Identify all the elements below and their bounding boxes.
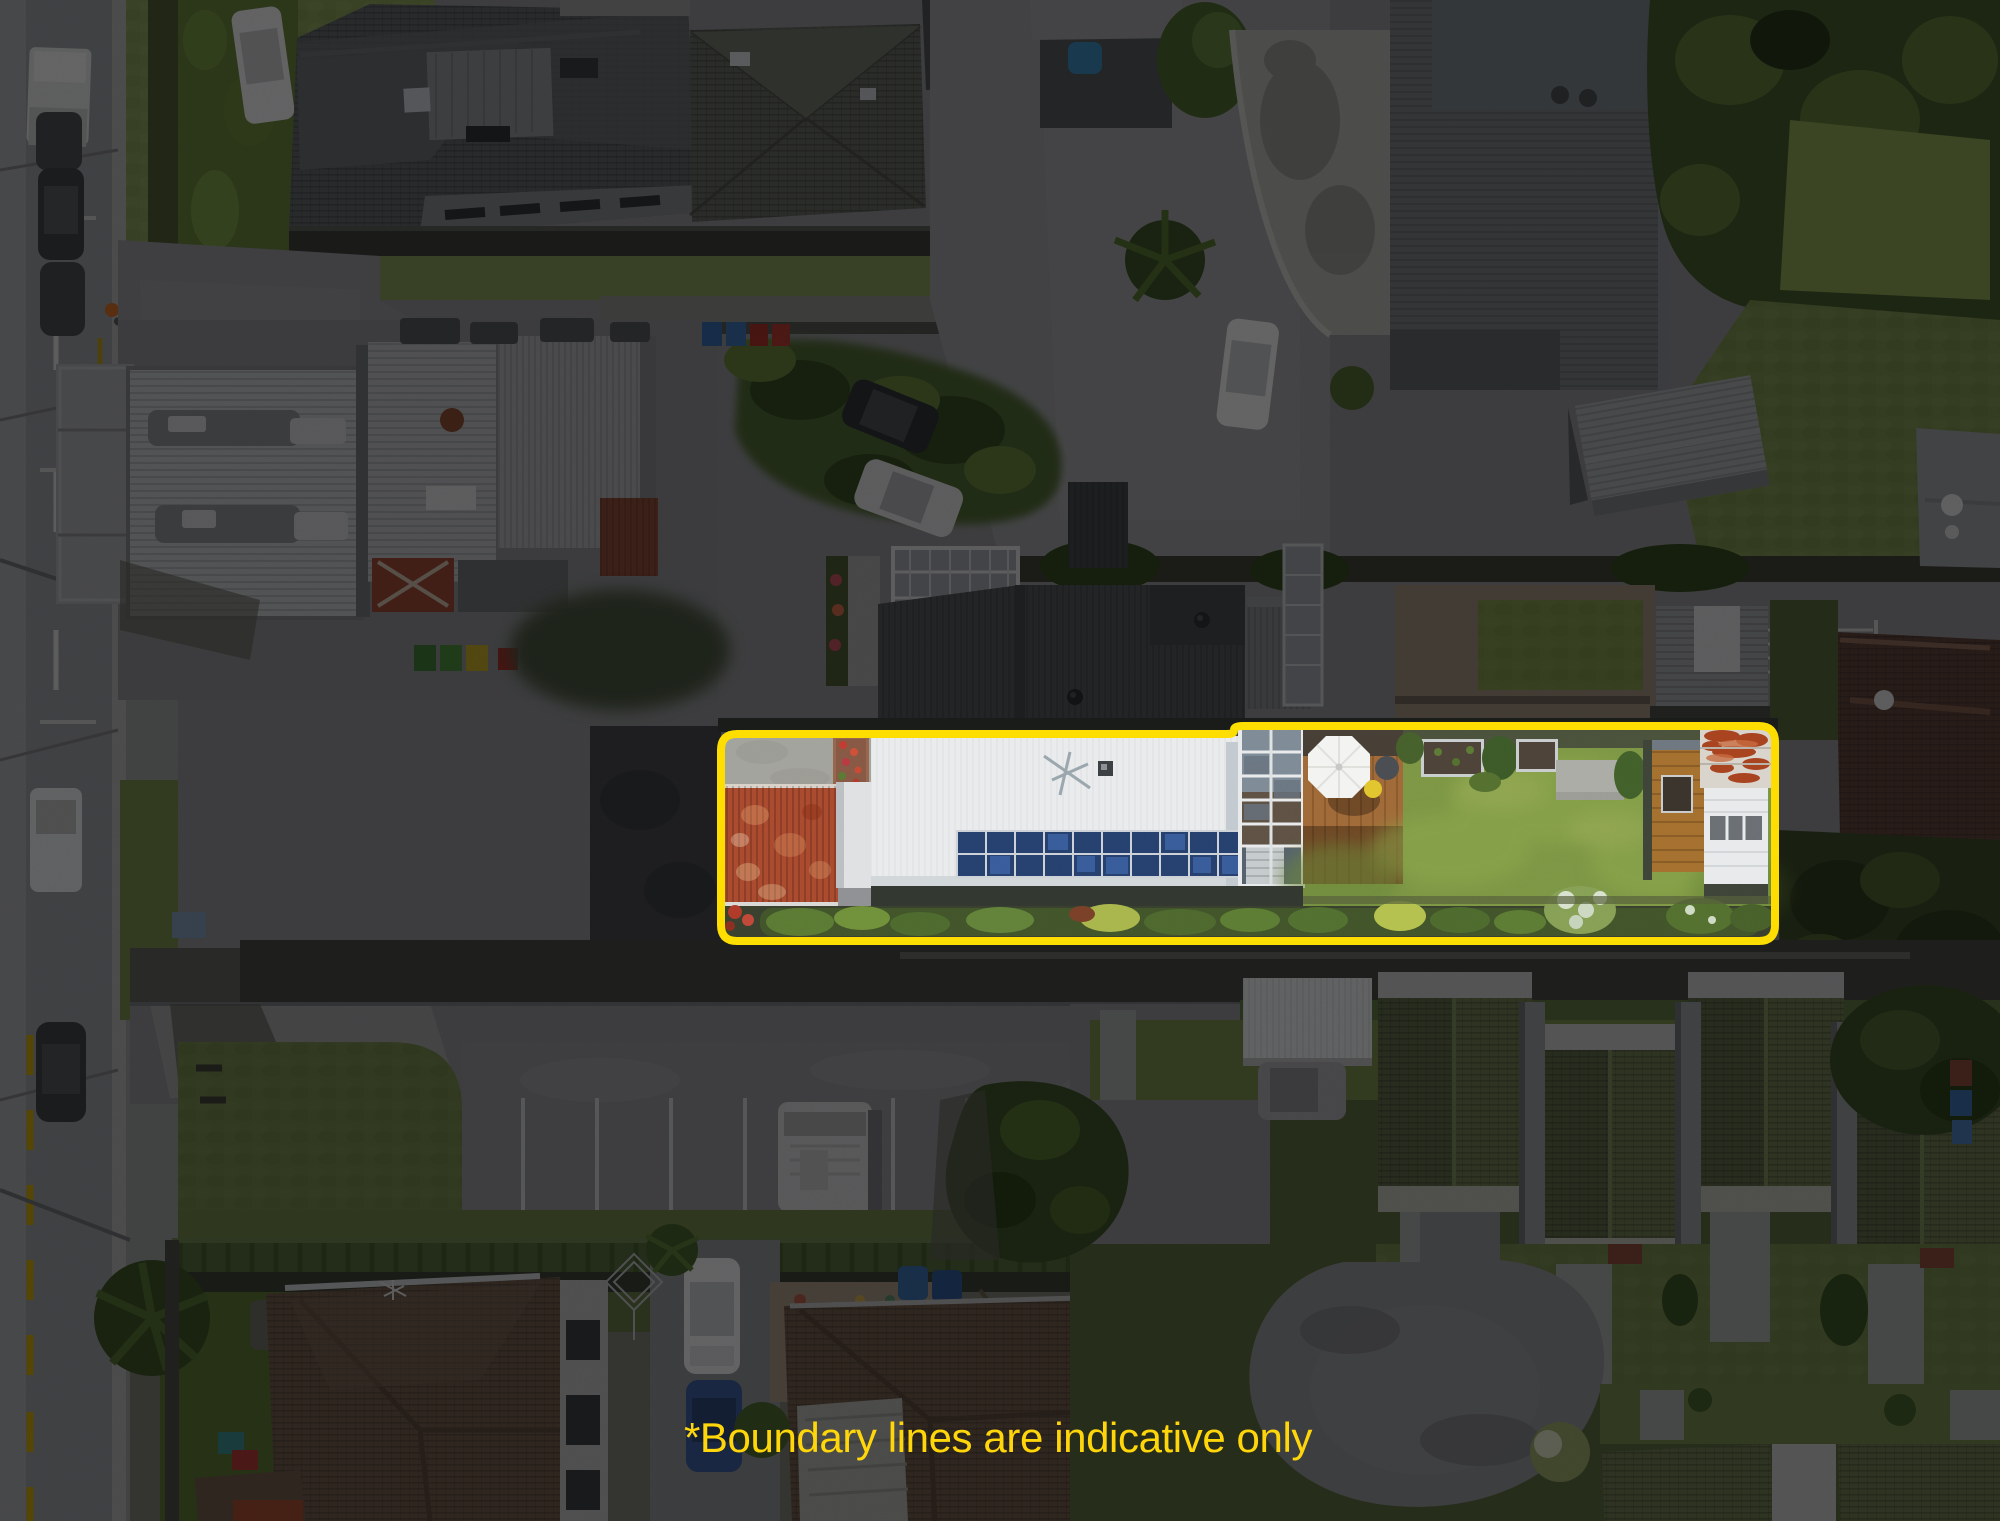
svg-text:*Boundary lines are indicative: *Boundary lines are indicative only <box>684 1414 1312 1461</box>
